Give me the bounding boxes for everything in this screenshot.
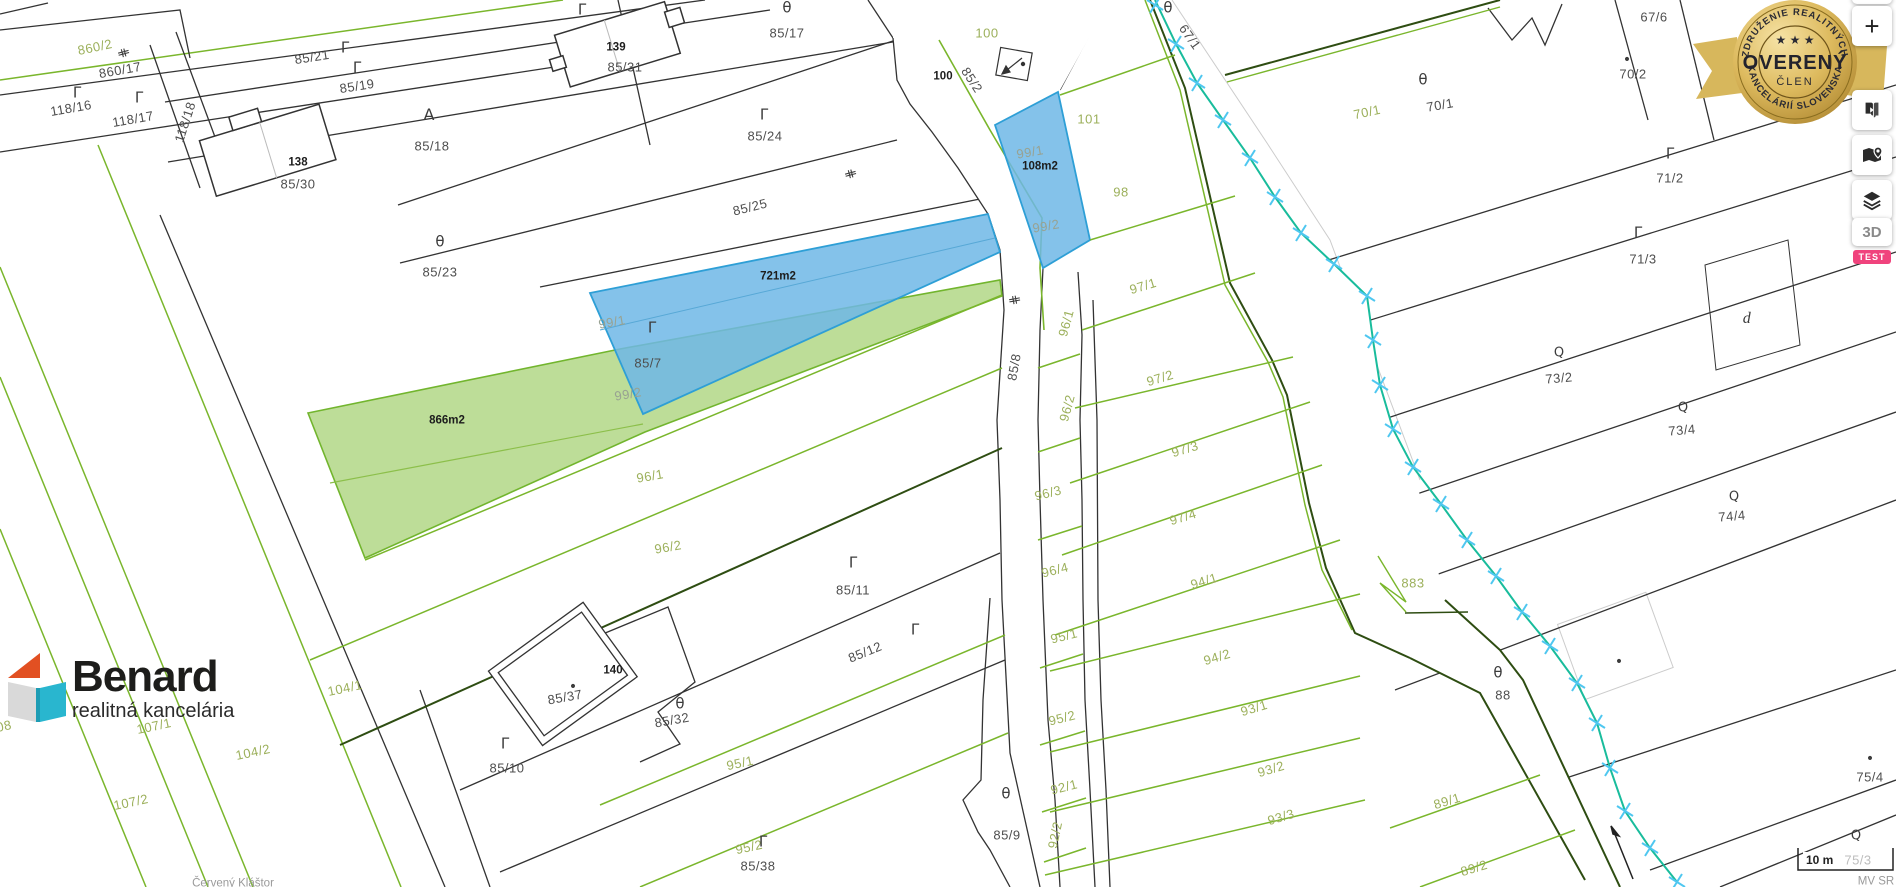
plus-icon: +: [1864, 13, 1879, 39]
view-3d-label: 3D: [1862, 224, 1881, 241]
benard-logo: [6, 650, 68, 755]
view-3d-button[interactable]: 3D: [1852, 218, 1892, 246]
test-badge: TEST: [1853, 250, 1891, 264]
benard-logo-icon: [6, 650, 68, 750]
layers-icon: [1861, 189, 1883, 211]
cadastral-map-canvas[interactable]: [0, 0, 1896, 887]
scale-label: 10 m: [1803, 852, 1836, 868]
benard-logo-text: Benard realitná kancelária: [72, 655, 234, 724]
cadastral-map-app: 860/2860/17118/16118/17118/1885/2185/191…: [0, 0, 1896, 887]
map-location-button[interactable]: [1852, 135, 1892, 175]
booklet-icon: [1861, 99, 1883, 121]
logo-name: Benard: [72, 655, 234, 699]
compare-view-button[interactable]: [1852, 90, 1892, 130]
zoom-in-button[interactable]: +: [1852, 6, 1892, 46]
map-pin-icon: [1860, 143, 1884, 167]
hidden-control-button[interactable]: [1852, 0, 1892, 4]
logo-tagline: realitná kancelária: [72, 699, 234, 724]
layers-button[interactable]: [1852, 180, 1892, 220]
